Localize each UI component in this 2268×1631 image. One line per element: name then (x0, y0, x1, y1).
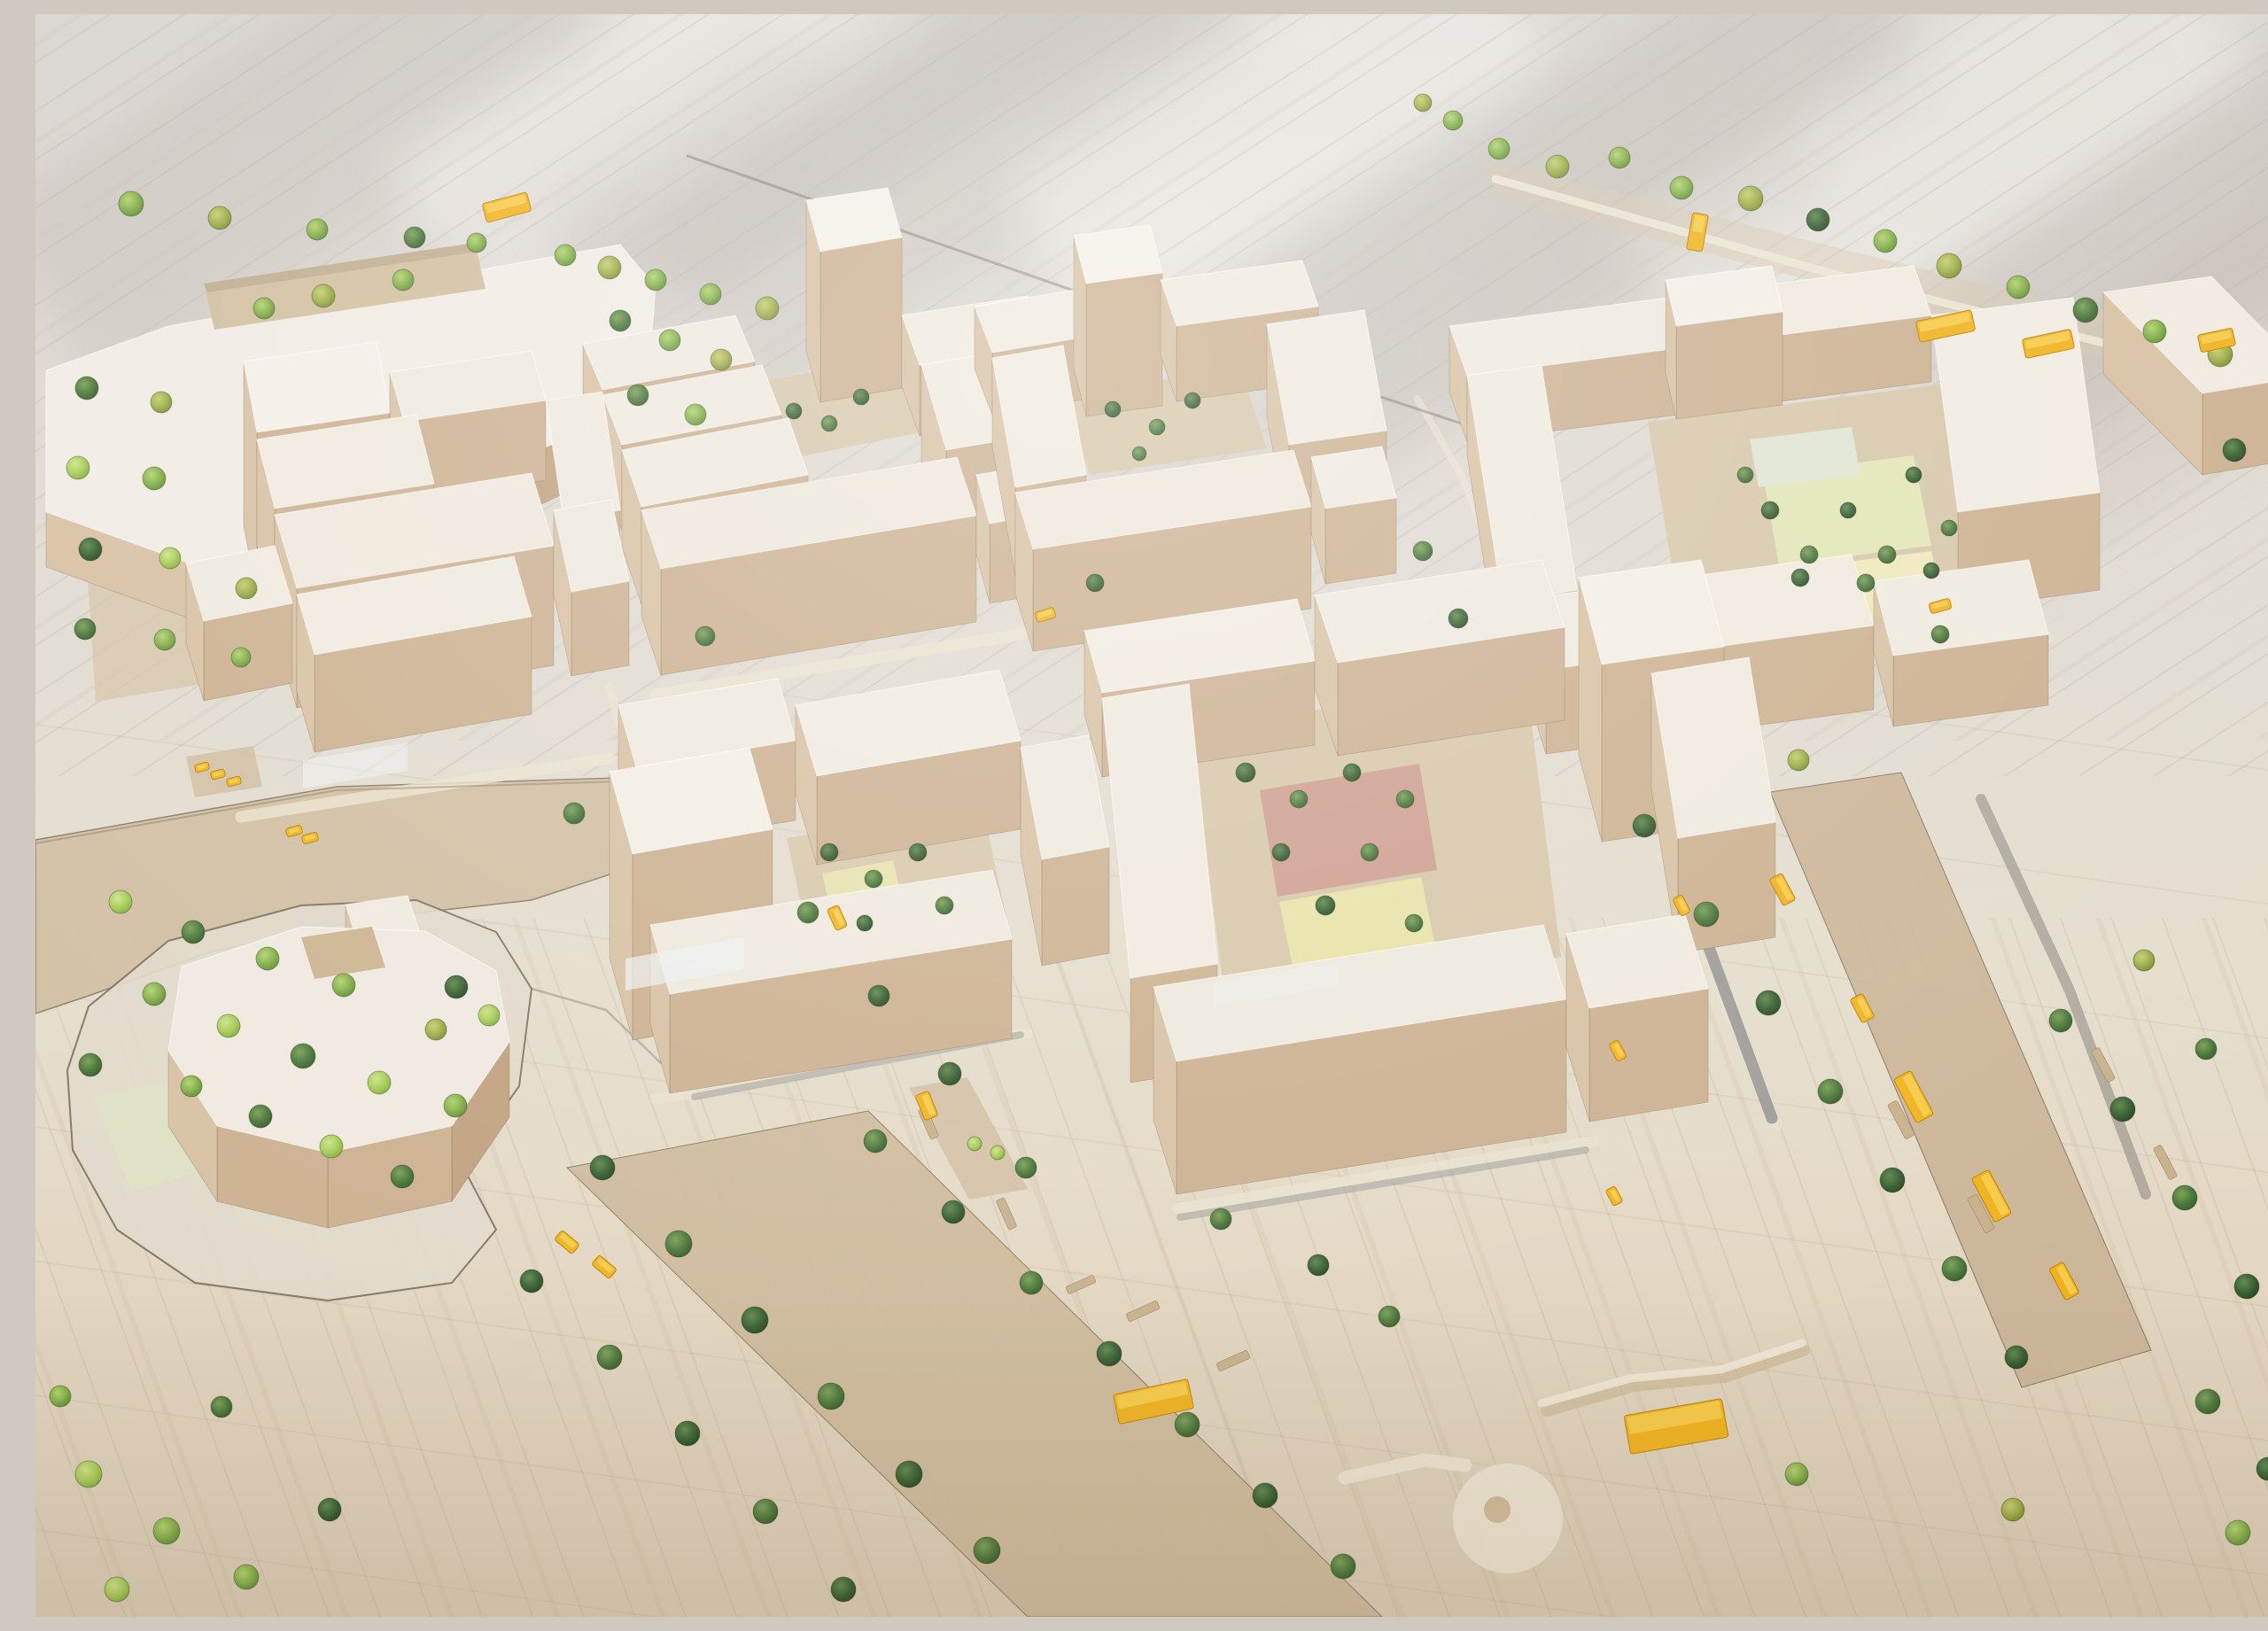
model-photo-svg (35, 14, 2268, 1617)
lighting (35, 14, 2268, 1617)
model-photo (35, 14, 2268, 1617)
